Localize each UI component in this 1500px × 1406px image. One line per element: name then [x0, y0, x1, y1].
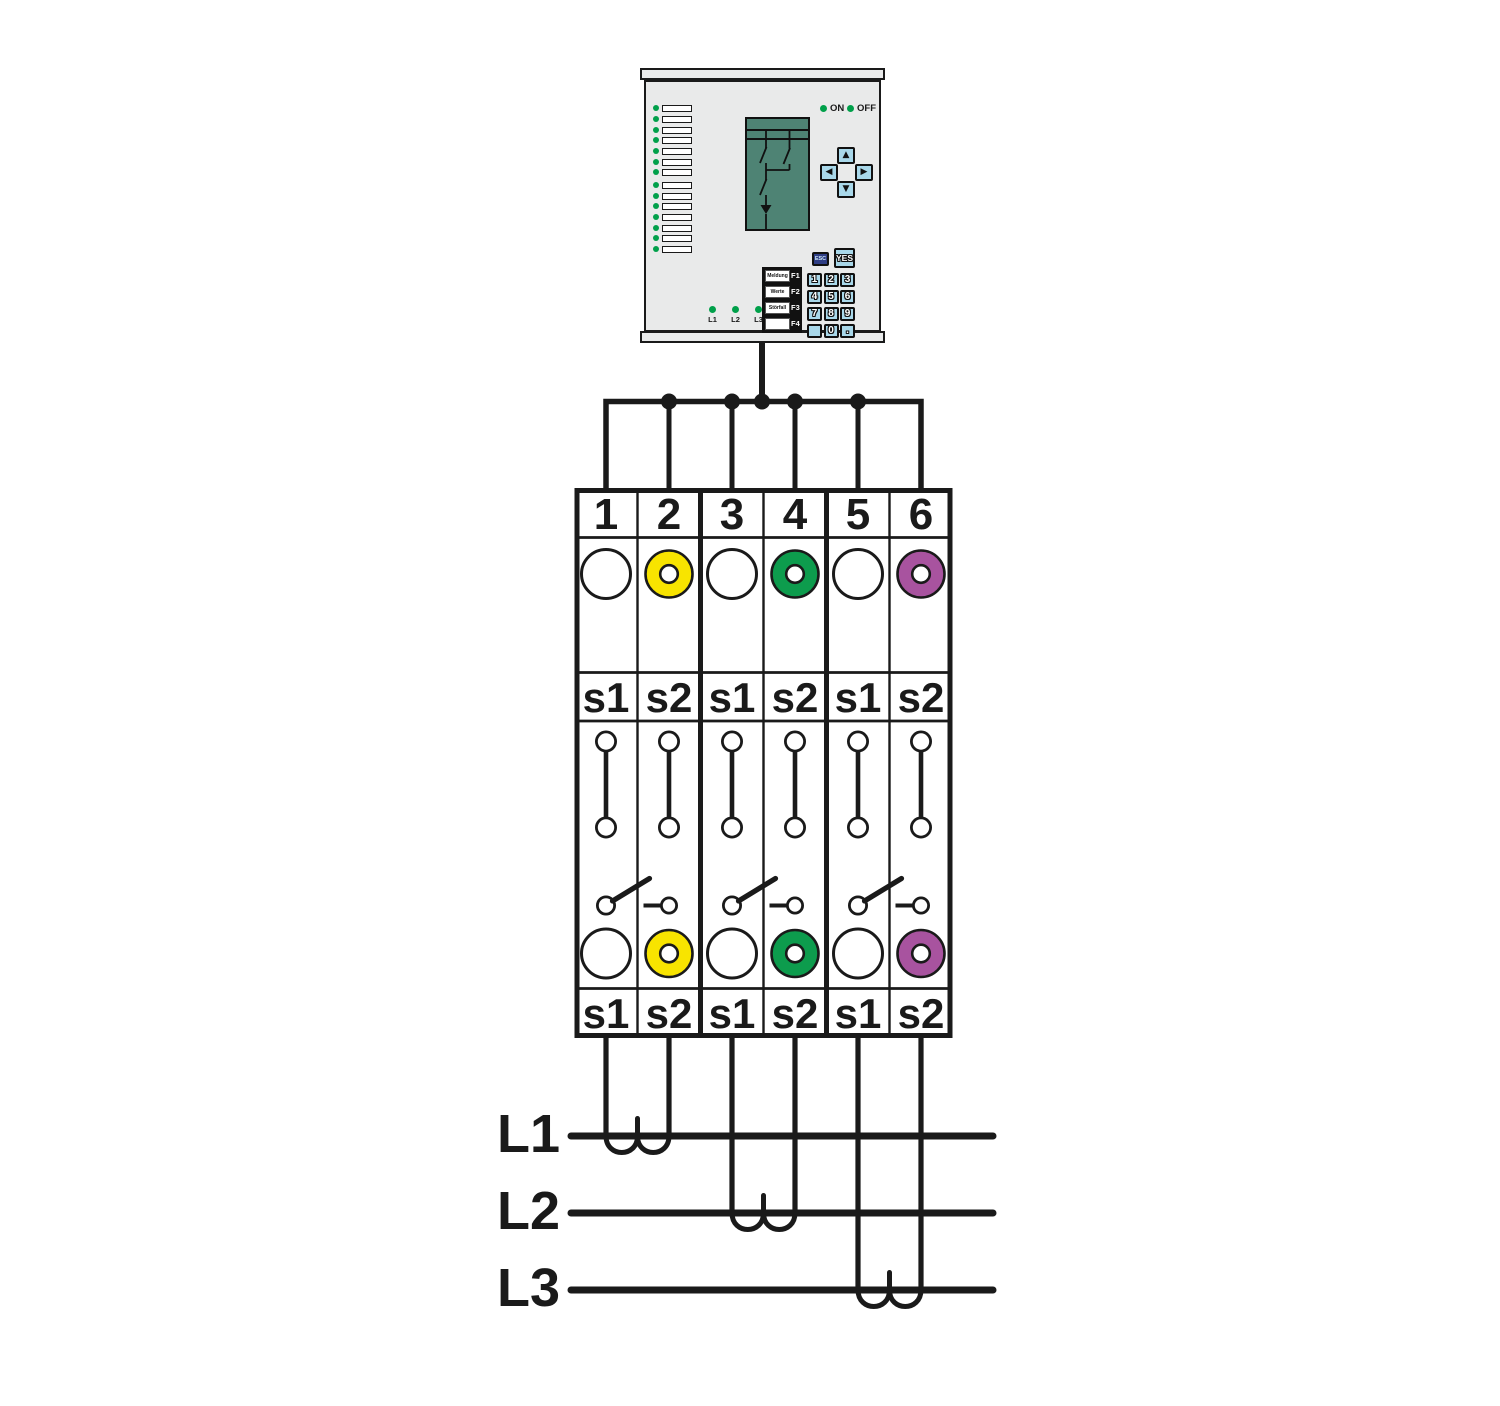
esc-key: ESC — [812, 252, 829, 266]
fkey-label-slot — [765, 318, 790, 330]
numpad-key-9: 9 — [840, 307, 855, 321]
off-led-icon — [847, 105, 854, 112]
bus-junction-dot — [850, 394, 866, 410]
device-front-panel: ON OFF — [644, 80, 881, 332]
wiring-diagram: 1 2 3 4 5 6 s1 s2 s1 s2 s1 s2 — [0, 0, 1500, 1406]
terminal-number: 5 — [846, 490, 870, 539]
terminal-number: 4 — [783, 490, 808, 539]
fkey-label-slot: Werte — [765, 286, 790, 298]
led-label-slot — [662, 169, 692, 176]
led-label-slot — [662, 105, 692, 112]
led-label-slot — [662, 137, 692, 144]
yes-key: YES — [834, 248, 855, 268]
marker-ring-hole — [912, 565, 930, 583]
led-label-slot — [662, 214, 692, 221]
terminal-label: s1 — [835, 990, 882, 1037]
led-label-slot — [662, 159, 692, 166]
numpad-key-5: 5 — [824, 290, 839, 304]
line-label-l3: L3 — [497, 1258, 560, 1318]
led-label-slot — [662, 225, 692, 232]
phase-l2-label: L2 — [727, 315, 745, 324]
on-label: ON — [830, 104, 844, 114]
marker-ring-hole — [786, 565, 804, 583]
terminal-label: s2 — [646, 990, 693, 1037]
terminal-number: 1 — [594, 490, 618, 539]
terminal-number: 2 — [657, 490, 681, 539]
led-icon — [653, 182, 659, 188]
single-line-diagram — [747, 119, 808, 229]
fkey-row: F4 — [762, 317, 802, 330]
marker-ring-hole — [660, 945, 678, 963]
function-key-block: MeldungF1 WerteF2 StörfallF3 F4 — [762, 267, 802, 333]
terminal-label: s2 — [898, 990, 945, 1037]
lcd-display — [745, 117, 810, 231]
phase-l1-led-icon — [709, 306, 716, 313]
led-icon — [653, 148, 659, 154]
terminal-label: s1 — [709, 674, 756, 721]
fkey-row: WerteF2 — [762, 285, 802, 298]
arrow-down-key: ▼ — [837, 181, 855, 198]
marker-hole — [834, 929, 883, 978]
terminal-label: s2 — [898, 674, 945, 721]
bus-junction-dot — [661, 394, 677, 410]
off-label: OFF — [857, 104, 876, 114]
arrow-left-key: ◀ — [820, 164, 838, 181]
phase-l1-label: L1 — [704, 315, 722, 324]
led-icon — [653, 116, 659, 122]
terminal-number: 6 — [909, 490, 933, 539]
terminal-label: s2 — [646, 674, 693, 721]
led-icon — [653, 235, 659, 241]
numpad-key-blank — [807, 324, 822, 338]
numpad-key-3: 3 — [840, 273, 855, 287]
numpad-key-0: 0 — [824, 324, 839, 338]
marker-hole — [582, 929, 631, 978]
terminal-label: s1 — [709, 990, 756, 1037]
led-label-slot — [662, 148, 692, 155]
marker-hole — [582, 550, 631, 599]
phase-l2-led-icon — [732, 306, 739, 313]
f3-key: F3 — [791, 302, 800, 313]
led-icon — [653, 137, 659, 143]
led-label-slot — [662, 235, 692, 242]
f2-key: F2 — [791, 286, 800, 297]
fkey-label-slot: Störfall — [765, 302, 790, 314]
marker-hole — [708, 929, 757, 978]
led-icon — [653, 127, 659, 133]
line-label-l2: L2 — [497, 1181, 560, 1241]
marker-ring-hole — [912, 945, 930, 963]
bus-junction-dot — [724, 394, 740, 410]
led-label-slot — [662, 203, 692, 210]
led-label-slot — [662, 246, 692, 253]
phase-l3-label: L3 — [750, 315, 768, 324]
led-label-slot — [662, 116, 692, 123]
bus-wire — [606, 402, 921, 492]
bus-junction-dot — [754, 394, 770, 410]
ct-wiring: L1 L2 L3 — [497, 1036, 993, 1318]
fkey-row: StörfallF3 — [762, 301, 802, 314]
led-label-slot — [662, 127, 692, 134]
terminal-label: s2 — [772, 674, 819, 721]
numpad-key-1: 1 — [807, 273, 822, 287]
terminal-number: 3 — [720, 490, 744, 539]
led-icon — [653, 246, 659, 252]
led-label-slot — [662, 182, 692, 189]
numpad-key-7: 7 — [807, 307, 822, 321]
led-label-slot — [662, 193, 692, 200]
marker-hole — [834, 550, 883, 599]
marker-hole — [708, 550, 757, 599]
terminal-label: s1 — [583, 674, 630, 721]
bus-junction-dot — [787, 394, 803, 410]
marker-ring-hole — [660, 565, 678, 583]
led-icon — [653, 203, 659, 209]
numpad-key-dot: . — [840, 324, 855, 338]
led-icon — [653, 159, 659, 165]
measuring-device: ON OFF — [640, 68, 885, 343]
led-icon — [653, 193, 659, 199]
arrow-right-key: ▶ — [855, 164, 873, 181]
numpad-key-8: 8 — [824, 307, 839, 321]
numpad-key-2: 2 — [824, 273, 839, 287]
line-label-l1: L1 — [497, 1104, 560, 1164]
numpad-key-4: 4 — [807, 290, 822, 304]
fkey-label-slot: Meldung — [765, 270, 790, 282]
terminal-label: s1 — [583, 990, 630, 1037]
marker-ring-hole — [786, 945, 804, 963]
numpad-key-6: 6 — [840, 290, 855, 304]
led-icon — [653, 214, 659, 220]
terminal-label: s1 — [835, 674, 882, 721]
fkey-row: MeldungF1 — [762, 269, 802, 282]
arrow-up-key: ▲ — [837, 147, 855, 164]
phase-l3-led-icon — [755, 306, 762, 313]
supply-bus — [606, 336, 921, 491]
terminal-label: s2 — [772, 990, 819, 1037]
terminal-strip: 1 2 3 4 5 6 s1 s2 s1 s2 s1 s2 — [576, 490, 951, 1037]
f4-key: F4 — [791, 318, 800, 329]
device-top-rail — [640, 68, 885, 80]
on-led-icon — [820, 105, 827, 112]
led-icon — [653, 105, 659, 111]
led-icon — [653, 225, 659, 231]
f1-key: F1 — [791, 270, 800, 281]
led-icon — [653, 169, 659, 175]
